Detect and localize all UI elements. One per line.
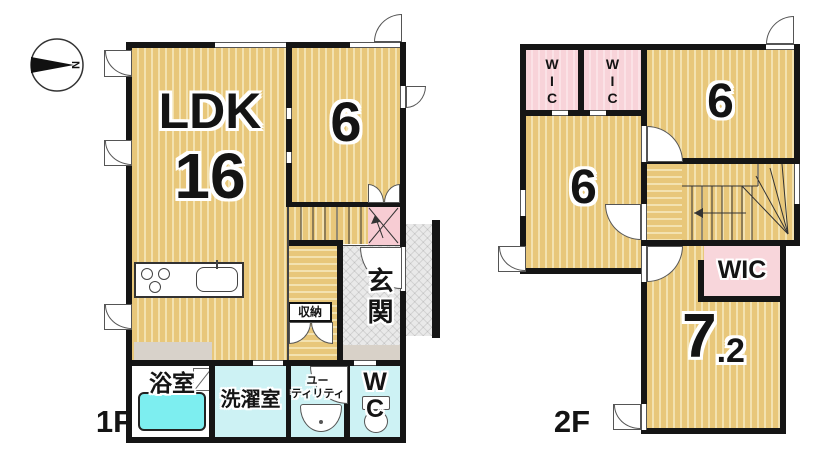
window-icon xyxy=(104,304,132,330)
door-gap-icon xyxy=(253,360,283,366)
door-gap-icon xyxy=(552,110,568,116)
stairs-2f-lines xyxy=(682,164,794,240)
stove-burner-icon xyxy=(149,281,161,293)
compass-north-label: N xyxy=(69,61,81,69)
entrance-step xyxy=(343,345,400,361)
storage-label: 収納 xyxy=(288,302,332,322)
wall xyxy=(126,437,406,443)
window-icon xyxy=(794,164,800,204)
ldk-size-label: 16 xyxy=(132,144,288,208)
wall xyxy=(520,110,647,116)
floor1-name-label: 1F xyxy=(78,406,150,437)
wall xyxy=(780,240,786,434)
kitchen-sink xyxy=(196,267,238,292)
wc-label: WC xyxy=(350,369,400,423)
vanity-counter xyxy=(134,342,212,360)
room-6-1f-label: 6 xyxy=(292,94,400,150)
door-gap-icon xyxy=(354,360,376,366)
wic2-label: WIC xyxy=(584,56,641,107)
room-6a-label: 6 xyxy=(526,164,641,212)
window-icon xyxy=(215,42,286,48)
utility-sink-drain-icon xyxy=(319,420,323,424)
laundry-label: 洗濯室 xyxy=(215,390,286,410)
door-gap-icon xyxy=(590,110,606,116)
floor2-name-label: 2F xyxy=(536,406,608,437)
door-arc-icon xyxy=(766,16,794,44)
porch-floor xyxy=(406,224,432,336)
stove-burner-icon xyxy=(141,268,153,280)
porch-edge-wall xyxy=(432,220,440,338)
wall xyxy=(337,246,343,363)
door-gap-icon xyxy=(641,204,647,240)
door-gap-icon xyxy=(766,44,794,50)
window-icon xyxy=(641,404,647,430)
ldk-label: LDK xyxy=(132,86,288,136)
window-vent-icon xyxy=(406,86,426,108)
wall xyxy=(520,268,647,274)
bathroom-label: 浴室 xyxy=(134,372,210,395)
window-icon xyxy=(498,246,526,272)
entrance-label: 玄関 xyxy=(352,252,392,344)
floor-plan-canvas: N xyxy=(0,0,840,464)
wall xyxy=(520,44,800,50)
door-arc-icon xyxy=(374,14,402,42)
wall xyxy=(641,428,786,434)
room-6b-label: 6 xyxy=(647,78,794,126)
wall xyxy=(794,44,800,246)
room-72-label: 7.2 xyxy=(647,306,780,368)
floor-divider-line xyxy=(343,245,400,246)
utility-label: ユー ティリティ xyxy=(291,375,344,401)
stove-burner-icon xyxy=(158,268,170,280)
window-icon xyxy=(350,42,400,48)
window-icon xyxy=(104,140,132,166)
wic3-label: WIC xyxy=(704,258,780,283)
wall xyxy=(287,240,343,246)
kitchen-faucet-icon xyxy=(216,260,218,269)
window-icon xyxy=(104,50,132,77)
window-icon xyxy=(613,404,641,430)
hall-2f-floor xyxy=(647,164,682,240)
compass-icon: N xyxy=(28,36,86,94)
wic1-label: WIC xyxy=(526,56,578,107)
